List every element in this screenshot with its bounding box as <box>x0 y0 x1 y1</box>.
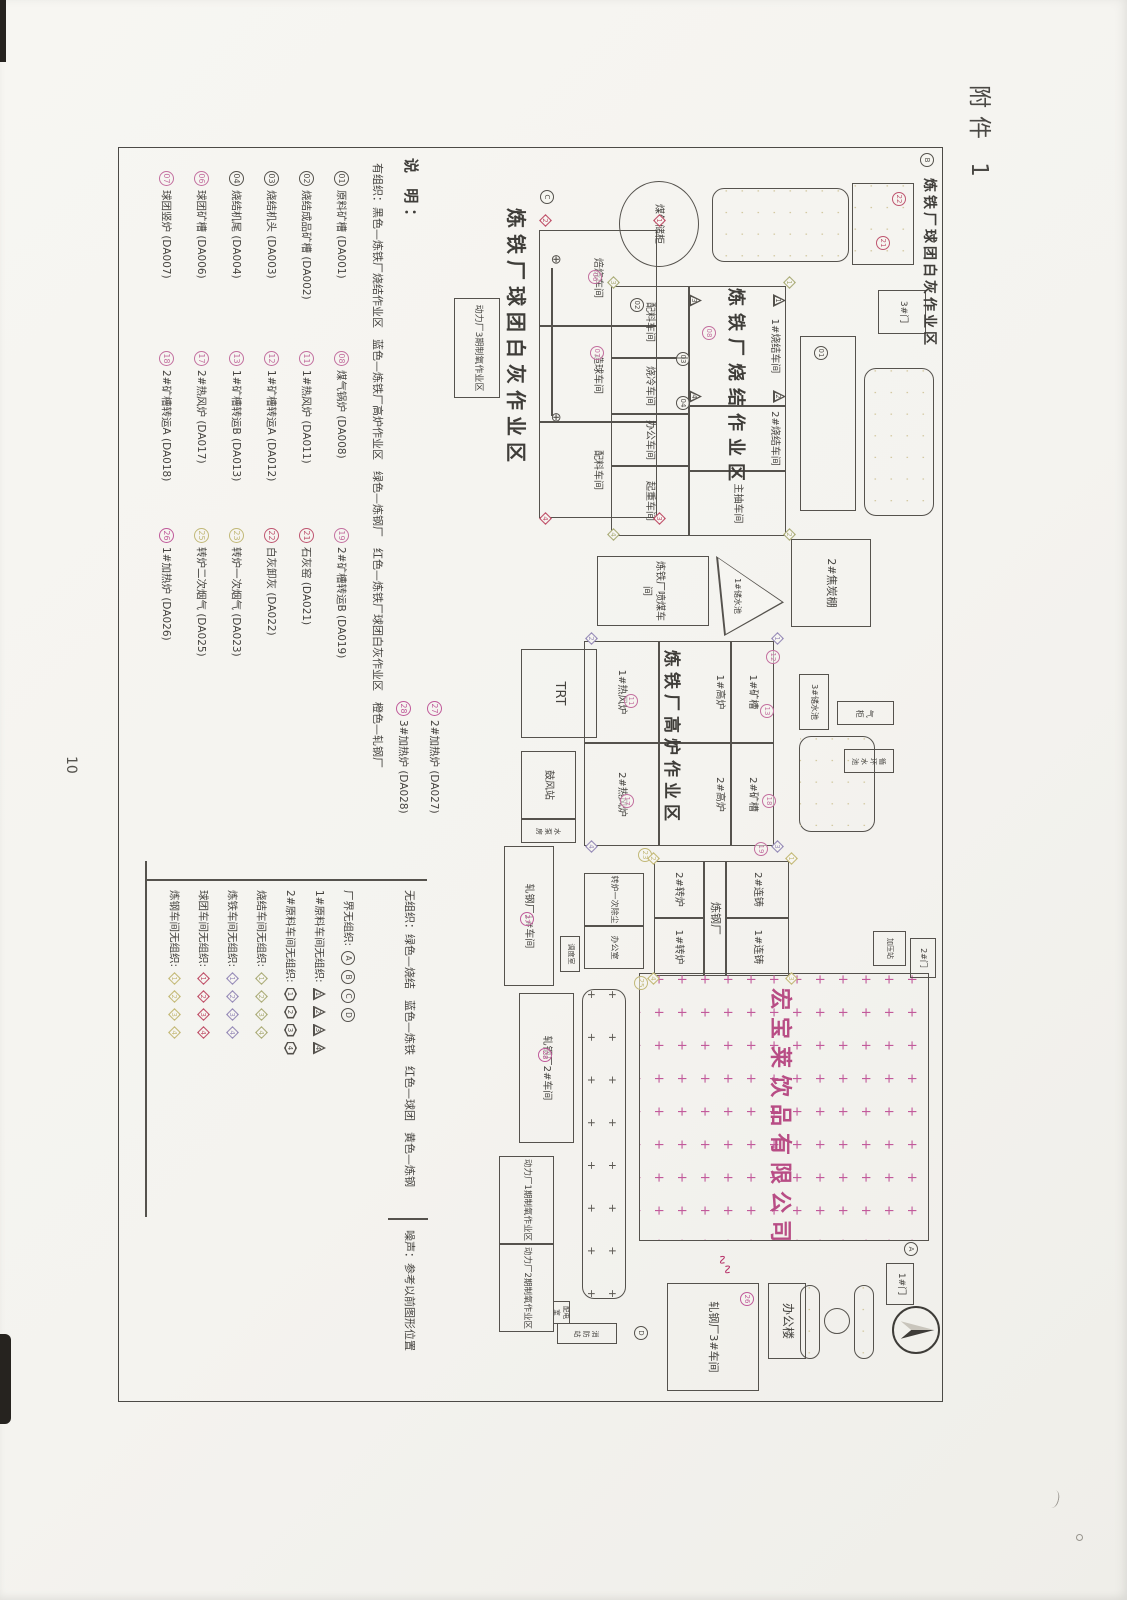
triangle-symbol: 1 <box>313 988 326 1001</box>
fugitive-legend-row: 厂界无组织:ABCD <box>341 890 356 1022</box>
legend-divider <box>145 879 427 881</box>
legend-item-number: 02 <box>299 171 314 186</box>
legend-item-label: 烧结机尾 (DA004) <box>229 190 244 279</box>
pattern-fill: + + + + + + + + + + + + + + + + + + + + … <box>583 990 625 1298</box>
legend-item-label: 1#热风炉 (DA011) <box>299 370 314 464</box>
circle-symbol: D <box>342 1008 356 1022</box>
legend-item-number: 27 <box>427 701 442 716</box>
emission-point-marker: 18 <box>762 794 776 808</box>
fugitive-row-label: 炼铁车间无组织: <box>225 890 240 967</box>
legend-item-label: 2#矿槽转运B (DA019) <box>334 547 349 658</box>
legend-item-number: 03 <box>264 171 279 186</box>
legend-item-label: 原料矿槽 (DA001) <box>334 190 349 279</box>
fire-station: 消防站 <box>557 1323 617 1344</box>
emission-point-marker: 19 <box>754 842 768 856</box>
emission-point-marker: 07 <box>590 346 604 360</box>
legend-item-label: 转炉一次烟气 (DA023) <box>229 547 244 657</box>
legend-item: 192#矿槽转运B (DA019) <box>334 528 349 658</box>
diamond-symbol: 4 <box>168 1026 181 1039</box>
trt-box: TRT <box>521 649 597 738</box>
diamond-symbol: 1 <box>255 972 268 985</box>
emission-point-marker: 21 <box>876 236 890 250</box>
fugitive-legend-row: 球团车间无组织:1234 <box>196 890 211 1039</box>
gate-3-box: 3#门 <box>878 290 926 334</box>
oxygen-plant-3-box: 动力厂3期制氧作业区 <box>454 298 500 398</box>
legend-item-number: 06 <box>194 171 209 186</box>
legend-item-label: 烧结机头 (DA003) <box>264 190 279 279</box>
building-label: 动力厂2期制氧作业区 <box>520 1246 533 1330</box>
legend-item-label: 2#矿槽转运A (DA018) <box>159 370 174 481</box>
symbol-number: 3 <box>284 1024 297 1037</box>
blower-station: 鼓风站 <box>521 751 576 819</box>
diamond-symbol: 2 <box>539 214 552 227</box>
building-label: 办公楼 <box>778 1302 796 1340</box>
triangle-symbol: 3 <box>689 294 702 307</box>
building-label: 轧钢厂3#车间 <box>705 1300 721 1373</box>
steel-plant-title-cell: 炼钢厂 <box>704 861 726 976</box>
legend-item-label: 2#热风炉 (DA017) <box>194 370 209 464</box>
legend-item-label: 石灰窑 (DA021) <box>299 547 314 625</box>
boundary-point-marker: C <box>540 190 554 204</box>
symbol-number: 2 <box>313 1006 323 1019</box>
legend-item-label: 烧结成品矿槽 (DA002) <box>299 190 314 300</box>
legend-item: 07球团竖炉 (DA007) <box>159 171 174 279</box>
legend-item: 08煤气锅炉 (DA008) <box>334 351 349 459</box>
legend-item-number: 19 <box>334 528 349 543</box>
boundary-point-marker: B <box>920 153 934 167</box>
legend-item: 03烧结机头 (DA003) <box>264 171 279 279</box>
converter-dedusting: 转炉一次除尘 <box>584 873 644 926</box>
diamond-symbol: 1 <box>197 972 210 985</box>
building-label: 1#热风炉 <box>614 669 629 716</box>
legend-item: 02烧结成品矿槽 (DA002) <box>299 171 314 300</box>
bf-stove-2: 2#热风炉 <box>584 743 659 846</box>
building-label: 消防站 <box>572 1328 603 1339</box>
building-label: 配电室 <box>552 1302 571 1323</box>
building-label: 配料车间 <box>643 301 658 343</box>
caster-1: 1#连铸 <box>726 918 789 976</box>
symbol-number: 3 <box>255 1008 268 1021</box>
circle-symbol: C <box>342 989 356 1003</box>
rolling-mill-2: 轧钢厂2#车间 <box>519 993 574 1143</box>
legend-item-label: 白灰卸灰 (DA022) <box>264 547 279 636</box>
triangle-symbol: 4 <box>689 390 702 403</box>
building-label: 水泵房 <box>533 825 564 836</box>
symbol-number: 1 <box>783 276 796 289</box>
emission-point-marker: 03 <box>676 352 690 366</box>
sinter-cell-office: 办公车间 <box>611 414 689 466</box>
symbol-number: 3 <box>607 276 620 289</box>
triangle-symbol: 1 <box>773 294 786 307</box>
symbol-number: 3 <box>313 1024 323 1037</box>
symbol-number: 3 <box>168 1008 181 1021</box>
fugitive-row-label: 2#原料车间无组织: <box>283 890 298 983</box>
diamond-symbol: 1 <box>226 972 239 985</box>
legend-item: 21石灰窑 (DA021) <box>299 528 314 625</box>
scan-edge-artifact <box>0 1334 11 1424</box>
fugitive-legend-row: 1#原料车间无组织:1234 <box>312 890 327 1055</box>
water-pool-3: 3#储水池 <box>799 674 829 730</box>
symbol-number: 1 <box>255 972 268 985</box>
legend-item: 261#加热炉 (DA026) <box>159 528 174 641</box>
building-label: 循环水池 <box>849 755 889 766</box>
pump-house: 水泵房 <box>521 819 576 843</box>
symbol-number: 1 <box>653 214 666 227</box>
building-label: 配料车间 <box>591 449 606 491</box>
oxygen-plant-2-box: 动力厂2期制氧作业区 <box>499 1244 554 1332</box>
symbol-number: 1 <box>785 852 798 865</box>
building-label: 2#连铸 <box>750 871 765 908</box>
building-label: 调度室 <box>564 943 575 966</box>
emission-point-marker: 08 <box>702 326 716 340</box>
building-label: 加压站 <box>884 937 895 960</box>
dispatch-room: 调度室 <box>560 936 580 972</box>
legend-item-label: 1#矿槽转运A (DA012) <box>264 370 279 481</box>
diamond-symbol: 3 <box>197 1008 210 1021</box>
symbol-number: 1 <box>197 972 210 985</box>
symbol-number: 2 <box>255 990 268 1003</box>
sinter-cell-crane: 起重车间 <box>611 466 689 536</box>
legend-item-number: 04 <box>229 171 244 186</box>
legend-item: 131#矿槽转运B (DA013) <box>229 351 244 481</box>
hexagon-symbol: 4 <box>284 1042 297 1055</box>
fugitive-legend-row: 烧结车间无组织:1234 <box>254 890 269 1039</box>
emission-point-marker: 01 <box>814 346 828 360</box>
diamond-symbol: 2 <box>255 990 268 1003</box>
legend-title: 说 明： <box>401 158 422 228</box>
north-compass-icon <box>892 1306 940 1354</box>
diamond-symbol: 4 <box>647 972 660 985</box>
legend-item-label: 煤气锅炉 (DA008) <box>334 370 349 459</box>
water-pool-1: 1#储水池 <box>716 556 784 636</box>
symbol-number: 4 <box>284 1042 297 1055</box>
gate-2-box: 2#门 <box>910 938 936 978</box>
building-label: 1#连铸 <box>750 929 765 966</box>
legend-item-number: 23 <box>229 528 244 543</box>
diamond-symbol: 3 <box>226 1008 239 1021</box>
emission-point-marker: 28 <box>538 1048 552 1062</box>
legend-item-number: 13 <box>229 351 244 366</box>
legend-item-number: 26 <box>159 528 174 543</box>
pattern-fill: · · · · · · · · · · · · · · · · · · · · … <box>800 737 874 831</box>
legend-item-number: 28 <box>396 701 411 716</box>
circle-symbol: A <box>342 951 356 965</box>
legend-item-number: 22 <box>264 528 279 543</box>
symbol-number: 2 <box>773 390 783 403</box>
legend-item: 283#加热炉 (DA028) <box>396 701 411 814</box>
legend-item-label: 2#加热炉 (DA027) <box>427 720 442 814</box>
emission-point-marker: 26 <box>740 1292 754 1306</box>
fugitive-row-label: 球团车间无组织: <box>196 890 211 967</box>
area-title: 宏宝莱饮品有限公司 <box>766 988 798 1249</box>
legend-item-label: 球团矿槽 (DA006) <box>194 190 209 279</box>
symbol-number: 4 <box>539 512 552 525</box>
building-label: 炼铁厂喷煤车间 <box>639 557 667 625</box>
fugitive-legend-row: 2#原料车间无组织:1234 <box>283 890 298 1055</box>
building-label: 1#储水池 <box>731 577 743 615</box>
pattern-fill: · · · · · <box>801 1286 819 1358</box>
legend-item-label: 1#加热炉 (DA026) <box>159 547 174 641</box>
benchmark-icon: ⊕ <box>549 412 562 423</box>
symbol-number: 3 <box>653 512 666 525</box>
legend-item-number: 25 <box>194 528 209 543</box>
coke-shed-2: 2#焦炭棚 <box>791 539 871 627</box>
legend-item-label: 3#加热炉 (DA028) <box>396 720 411 814</box>
legend-item-number: 21 <box>299 528 314 543</box>
legend-item: 121#矿槽转运A (DA012) <box>264 351 279 481</box>
area-title: 炼铁厂球团白灰作业区 <box>503 208 532 468</box>
converter-1: 1#转炉 <box>654 918 704 976</box>
noise-divider <box>388 1218 428 1220</box>
legend-item: 111#热风炉 (DA011) <box>299 351 314 464</box>
triangle-symbol: 4 <box>313 1042 326 1055</box>
raw-material-shed <box>800 336 856 511</box>
legend-item: 182#矿槽转运A (DA018) <box>159 351 174 481</box>
area-title: 炼铁厂高炉作业区 <box>661 650 686 826</box>
diamond-symbol: 1 <box>771 632 784 645</box>
emission-point-marker: 12 <box>766 650 780 664</box>
diamond-symbol: 4 <box>585 840 598 853</box>
gate-1-box: 1#门 <box>886 1263 914 1305</box>
symbol-number: 3 <box>197 1008 210 1021</box>
diamond-symbol: 4 <box>226 1026 239 1039</box>
diamond-symbol: 4 <box>539 512 552 525</box>
steel-office: 办公室 <box>584 926 644 969</box>
fugitive-legend-row: 炼钢车间无组织:1234 <box>167 890 182 1039</box>
legend-item-label: 球团竖炉 (DA007) <box>159 190 174 279</box>
emission-point-marker: 25 <box>634 976 648 990</box>
building-label: TRT <box>550 681 569 707</box>
drawing-frame: 说 明： 有组织：黑色—炼铁厂烧结作业区 蓝色—炼铁厂高炉作业区 绿色—炼钢厂 … <box>118 147 943 1402</box>
symbol-number: 1 <box>773 294 783 307</box>
building-label: 动力厂1期制氧作业区 <box>520 1158 533 1242</box>
symbol-number: 2 <box>197 990 210 1003</box>
symbol-number: 4 <box>197 1026 210 1039</box>
legend-item-number: 08 <box>334 351 349 366</box>
building-label: 2#高炉 <box>712 776 727 813</box>
building-label: 2#门 <box>917 947 929 969</box>
organized-legend-header: 有组织：黑色—炼铁厂烧结作业区 蓝色—炼铁厂高炉作业区 绿色—炼钢厂 红色—炼铁… <box>370 163 386 768</box>
symbol-number: 3 <box>226 1008 239 1021</box>
legend-item: 272#加热炉 (DA027) <box>427 701 442 814</box>
diamond-symbol: 3 <box>653 512 666 525</box>
emission-point-marker: 13 <box>760 704 774 718</box>
symbol-number: 4 <box>313 1042 323 1055</box>
diamond-symbol: 4 <box>255 1026 268 1039</box>
triangle-shape-inner <box>718 558 782 634</box>
gas-tank: 气柜 <box>837 701 894 725</box>
building-label: 3#门 <box>895 300 909 324</box>
emission-point-marker: 22 <box>892 192 906 206</box>
fugitive-legend-row: 炼铁车间无组织:1234 <box>225 890 240 1039</box>
boundary-point-marker: A <box>904 1242 918 1256</box>
building-label: 2#烧结车间 <box>767 410 782 467</box>
symbol-number: 3 <box>771 840 784 853</box>
green-area-3: · · · · · · · · · · · · · · · · · · · · … <box>799 736 875 832</box>
symbol-number: 2 <box>783 528 796 541</box>
symbol-number: 4 <box>255 1026 268 1039</box>
symbol-number: 4 <box>226 1026 239 1039</box>
legend-item: 23转炉一次烟气 (DA023) <box>229 528 244 657</box>
power-room: 配电室 <box>553 1301 570 1324</box>
scan-speckle <box>1076 1534 1083 1541</box>
emission-point-marker: 11 <box>624 694 638 708</box>
building-label: 办公车间 <box>643 419 658 461</box>
scanned-page: 附件 1 10 说 明： 有组织：黑色—炼铁厂烧结作业区 蓝色—炼铁厂高炉作业区… <box>0 0 1127 1600</box>
symbol-number: 3 <box>689 294 699 307</box>
building-label: 1#高炉 <box>712 674 727 711</box>
circle-symbol: B <box>342 970 356 984</box>
legend-item: 01原料矿槽 (DA001) <box>334 171 349 279</box>
symbol-number: 4 <box>168 1026 181 1039</box>
symbol-number: 1 <box>168 972 181 985</box>
building-label: 3#储水池 <box>808 683 820 721</box>
compass-needle-dark <box>896 1310 936 1350</box>
triangle-symbol: 2 <box>313 1006 326 1019</box>
red-scribble-mark: ∿∿ <box>713 1252 736 1278</box>
legend-item: 04烧结机尾 (DA004) <box>229 171 244 279</box>
legend-item-number: 18 <box>159 351 174 366</box>
legend-item-label: 转炉二次烟气 (DA025) <box>194 547 209 657</box>
diamond-symbol: 1 <box>168 972 181 985</box>
page-number: 10 <box>63 756 79 774</box>
diamond-symbol: 2 <box>168 990 181 1003</box>
caster-2: 2#连铸 <box>726 861 789 918</box>
building-label: 转炉一次除尘 <box>608 875 620 925</box>
green-area-1: · · · · · · · · · · · · · · · · · · · · … <box>712 188 849 262</box>
triangle-symbol: 2 <box>773 390 786 403</box>
diamond-symbol: 3 <box>255 1008 268 1021</box>
diamond-symbol: 3 <box>785 972 798 985</box>
road-strip: + + + + + + + + + + + + + + + + + + + + … <box>582 989 626 1299</box>
symbol-number: 2 <box>284 1006 297 1019</box>
symbol-number: 2 <box>539 214 552 227</box>
diamond-symbol: 1 <box>783 276 796 289</box>
symbol-number: 1 <box>313 988 323 1001</box>
legend-item: 172#热风炉 (DA017) <box>194 351 209 464</box>
symbol-number: 4 <box>585 840 598 853</box>
pattern-fill: · · · · · · · · · · · · · · · · · · · · … <box>713 189 848 261</box>
legend-item-number: 01 <box>334 171 349 186</box>
legend-item: 06球团矿槽 (DA006) <box>194 171 209 279</box>
area-title: 炼铁厂球团白灰作业区 <box>920 178 940 348</box>
garden-arc-2: · · · · · <box>800 1285 820 1359</box>
building-label: 2#焦炭棚 <box>823 557 839 608</box>
symbol-number: 4 <box>689 390 699 403</box>
symbol-number: 3 <box>785 972 798 985</box>
building-label: 烧冷车间 <box>643 365 658 407</box>
triangle-symbol: 3 <box>313 1024 326 1037</box>
sinter-cell-batching: 配料车间 <box>611 286 689 358</box>
green-area-2: · · · · · · · · · · · · · · · · · · · · … <box>864 368 934 516</box>
fugitive-row-label: 炼钢车间无组织: <box>167 890 182 967</box>
building-label: 办公室 <box>608 935 620 961</box>
emission-point-marker: 06 <box>588 270 602 284</box>
diamond-symbol: 2 <box>197 990 210 1003</box>
symbol-number: 1 <box>771 632 784 645</box>
diamond-symbol: 4 <box>197 1026 210 1039</box>
pattern-fill: · · · · · · · · · · · · · · · · · · · · … <box>865 369 933 515</box>
building-label: 2#矿槽 <box>745 776 760 813</box>
building-label: 1#门 <box>893 1272 907 1296</box>
hexagon-symbol: 3 <box>284 1024 297 1037</box>
garden-arc-1: · · · · · <box>854 1285 874 1359</box>
fugitive-row-label: 厂界无组织: <box>341 890 356 946</box>
diamond-symbol: 1 <box>785 852 798 865</box>
symbol-number: 1 <box>226 972 239 985</box>
benchmark-icon: ⊕ <box>549 254 562 265</box>
diamond-symbol: 3 <box>168 1008 181 1021</box>
symbol-number: 2 <box>585 632 598 645</box>
emission-point-marker: 04 <box>676 396 690 410</box>
hexagon-symbol: 2 <box>284 1006 297 1019</box>
coal-injection: 炼铁厂喷煤车间 <box>597 556 709 626</box>
symbol-number: 4 <box>607 528 620 541</box>
diamond-symbol: 2 <box>226 990 239 1003</box>
noise-note: 噪声：参考以前图形位置 <box>402 1230 418 1395</box>
legend-item-number: 17 <box>194 351 209 366</box>
legend-item-label: 1#矿槽转运B (DA013) <box>229 370 244 481</box>
fugitive-row-label: 1#原料车间无组织: <box>312 890 327 983</box>
legend-item: 25转炉二次烟气 (DA025) <box>194 528 209 657</box>
diamond-symbol: 2 <box>585 632 598 645</box>
pressure-station: 加压站 <box>873 931 906 966</box>
building-label: 2#转炉 <box>672 871 687 908</box>
diamond-symbol: 3 <box>607 276 620 289</box>
symbol-number: 2 <box>168 990 181 1003</box>
legend-underline <box>145 861 147 1217</box>
boundary-point-marker: D <box>634 1326 648 1340</box>
emission-point-marker: 27 <box>520 912 534 926</box>
diamond-symbol: 4 <box>607 528 620 541</box>
building-label: 1#矿槽 <box>745 674 760 711</box>
landscape-canvas: 附件 1 10 说 明： 有组织：黑色—炼铁厂烧结作业区 蓝色—炼铁厂高炉作业区… <box>0 0 1127 1600</box>
diamond-symbol: 1 <box>653 214 666 227</box>
converter-2: 2#转炉 <box>654 861 704 918</box>
symbol-number: 4 <box>647 972 660 985</box>
building-label: 炼钢厂 <box>707 901 723 936</box>
pattern-fill: · · · · · <box>855 1286 873 1358</box>
legend-item: 22白灰卸灰 (DA022) <box>264 528 279 636</box>
building-label: 鼓风站 <box>541 769 556 801</box>
emission-point-marker: 02 <box>630 298 644 312</box>
building-label: 1#转炉 <box>672 929 687 966</box>
scan-edge-artifact <box>0 0 6 62</box>
fugitive-legend-header: 无组织：绿色—烧结 蓝色—炼铁 红色—球团 黄色—炼钢 <box>402 890 418 1187</box>
building-label: 动力厂3期制氧作业区 <box>470 304 484 393</box>
garden-circle <box>824 1308 850 1334</box>
boundary-line <box>551 268 553 416</box>
area-title: 炼铁厂烧结作业区 <box>724 288 750 488</box>
legend-item-number: 07 <box>159 171 174 186</box>
legend-item-number: 11 <box>299 351 314 366</box>
emission-point-marker: 17 <box>620 794 634 808</box>
diamond-symbol: 2 <box>783 528 796 541</box>
symbol-number: 2 <box>226 990 239 1003</box>
legend-item-number: 12 <box>264 351 279 366</box>
attachment-label: 附件 1 <box>965 85 999 185</box>
diamond-symbol: 3 <box>771 840 784 853</box>
diamond-symbol: 2 <box>647 852 660 865</box>
building-label: 气柜 <box>854 707 878 719</box>
hexagon-symbol: 1 <box>284 988 297 1001</box>
symbol-number: 2 <box>647 852 660 865</box>
building-label: 主抽车间 <box>730 483 745 525</box>
building-label: 1#烧结车间 <box>767 318 782 375</box>
building-label: 轧钢厂2#车间 <box>539 1035 554 1102</box>
fugitive-row-label: 烧结车间无组织: <box>254 890 269 967</box>
symbol-number: 1 <box>284 988 297 1001</box>
